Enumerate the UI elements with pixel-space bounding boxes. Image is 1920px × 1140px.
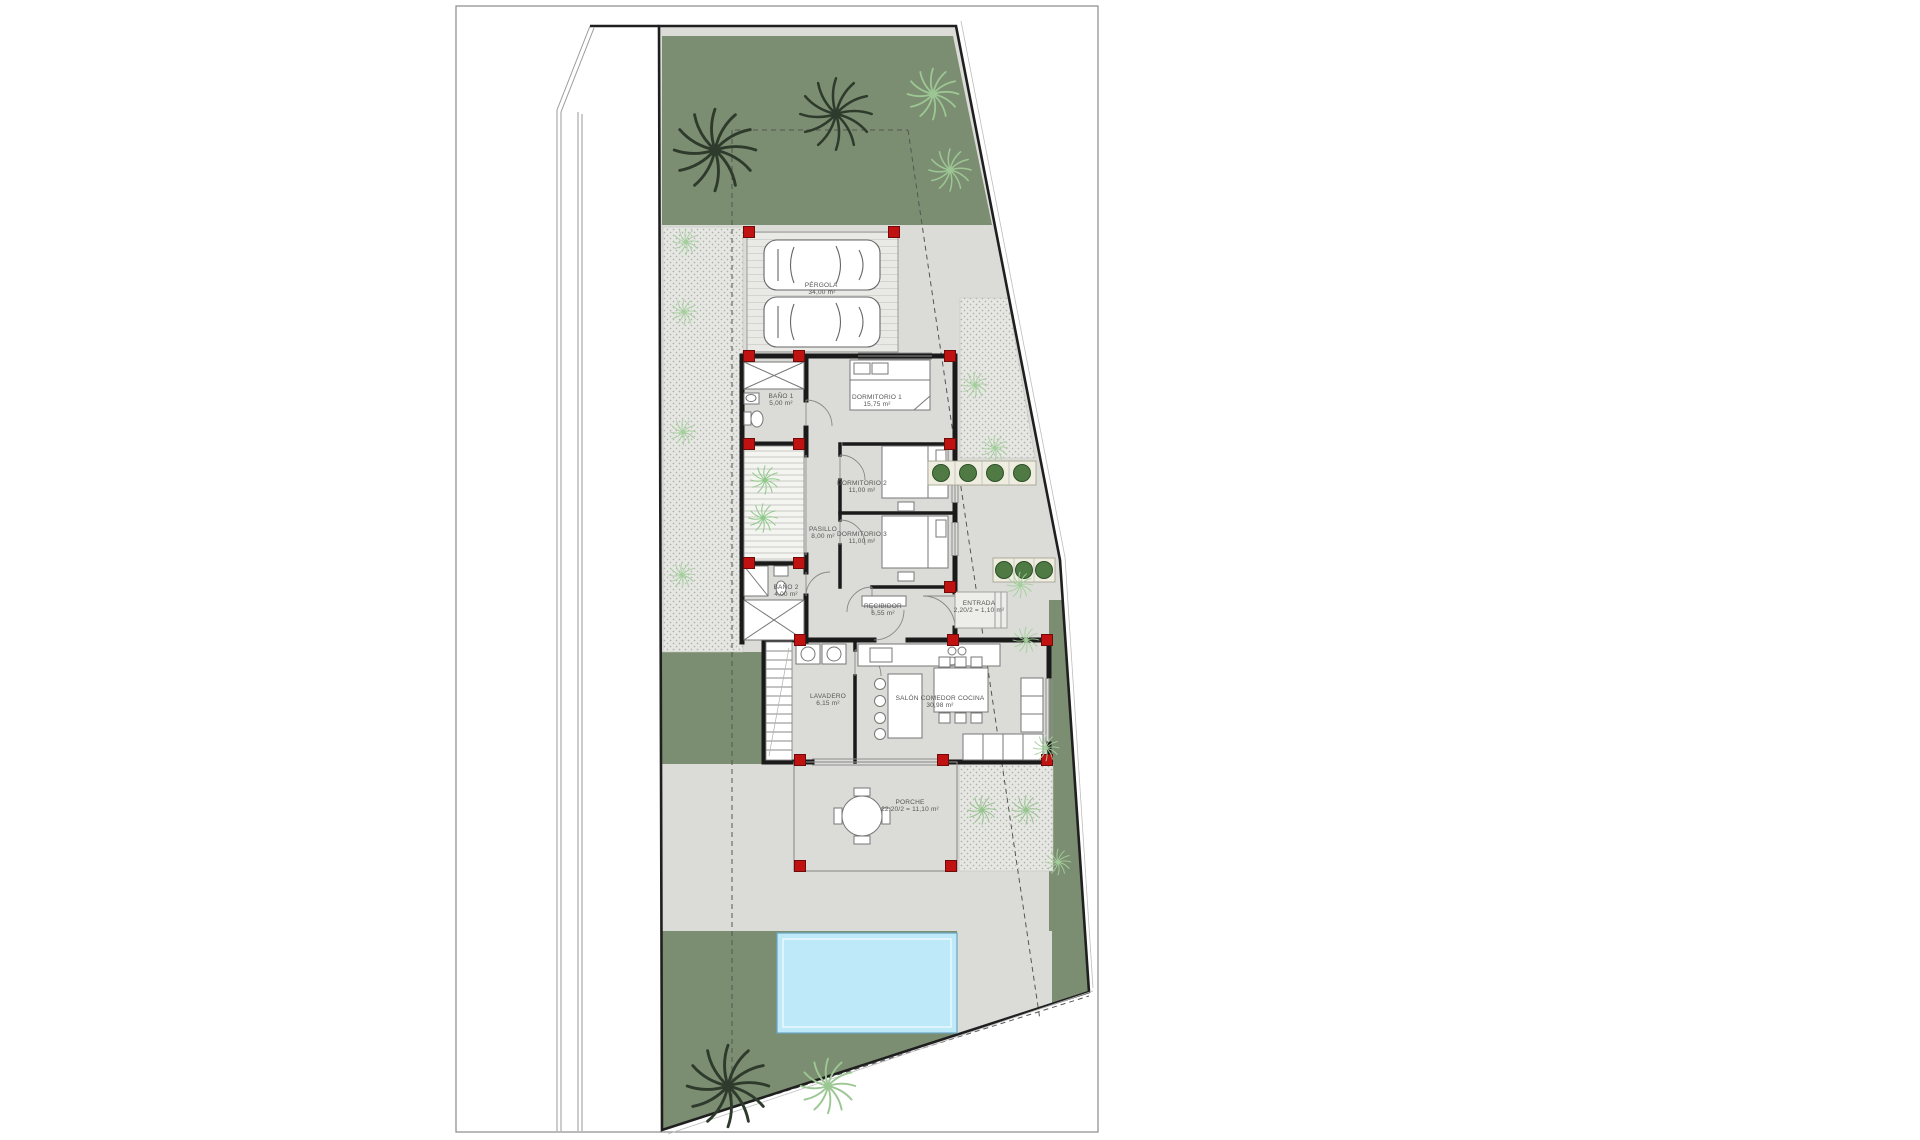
column-marker <box>794 439 805 450</box>
column-marker <box>945 582 956 593</box>
column-marker <box>889 227 900 238</box>
column-marker <box>744 227 755 238</box>
column-marker <box>795 755 806 766</box>
column-marker <box>946 861 957 872</box>
dining-table <box>934 657 988 723</box>
room-label-banyo1: BAÑO 15,00 m² <box>768 391 793 407</box>
room-label-pasillo: PASILLO8,00 m² <box>809 526 837 540</box>
column-marker <box>938 755 949 766</box>
pergola-carport: PÉRGOLA 34,00 m² <box>747 232 898 352</box>
site-plan-screenshot: PÉRGOLA 34,00 m² <box>0 0 1920 1140</box>
column-marker <box>795 861 806 872</box>
car-icon <box>764 297 880 347</box>
kitchen-island <box>875 674 923 740</box>
column-marker <box>744 558 755 569</box>
patio-deck <box>744 446 804 561</box>
column-marker <box>794 351 805 362</box>
column-marker <box>945 439 956 450</box>
column-marker <box>1042 635 1053 646</box>
site-plan-canvas: PÉRGOLA 34,00 m² <box>0 0 1920 1140</box>
room-label-banyo2: BAÑO 24,00 m² <box>773 582 798 598</box>
column-marker <box>948 635 959 646</box>
column-marker <box>744 351 755 362</box>
staircase <box>766 642 792 760</box>
column-marker <box>795 635 806 646</box>
paved-patch-porch-side <box>959 764 1053 871</box>
swimming-pool <box>777 933 957 1033</box>
room-label-pergola: PÉRGOLA 34,00 m² <box>805 280 839 296</box>
planter-row <box>993 558 1055 582</box>
garden-area-left <box>662 652 763 764</box>
paved-walkway-left <box>663 227 743 652</box>
column-marker <box>945 351 956 362</box>
planter-row <box>928 461 1036 485</box>
column-marker <box>794 558 805 569</box>
column-marker <box>744 439 755 450</box>
